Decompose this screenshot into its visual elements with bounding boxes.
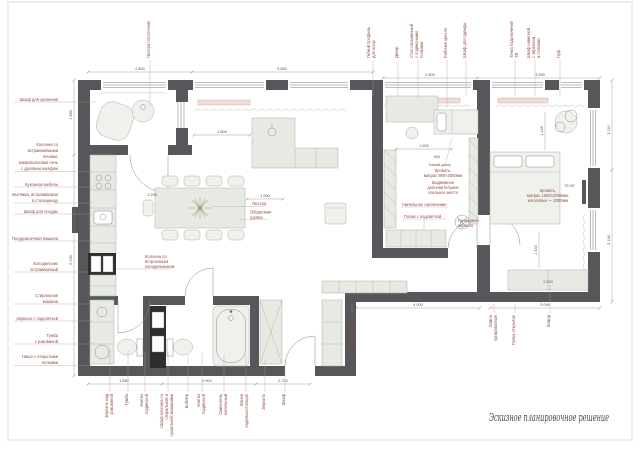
annotation-label: с раковиной [35,339,58,344]
annotation-label: Люстра [252,201,267,206]
annotation-label: Тумба [46,333,58,338]
annotation-label: Люстра потолочная [146,21,151,58]
drawing-title: Эскизное планировочное решение [489,411,609,424]
annotation-label: Рабочее кресло [443,27,448,58]
annotation-label: Полка открытая [511,315,516,345]
annotation-label: обувница, полки [351,315,356,346]
dimension-label: 2 800 [425,73,435,77]
annotation-label: встраиваемыми [28,148,58,153]
dimension-label: 2 800 [135,67,145,71]
annotation-label: Вытяжка, встраиваемая [12,192,58,197]
annotation-label: сушильной машинами [169,394,174,436]
annotation-label: изголовье — 2000мм [528,198,568,203]
annotation-label: Декор [394,46,399,58]
annotation-label: Кухонная мебель [25,182,58,187]
dimension-label: 1 805 [217,130,227,134]
annotation-label: в столешницу [32,198,59,203]
annotation-label: Ниша с открытыми [22,354,58,359]
hall-wardrobe [322,281,407,293]
annotation-label: Посудомоечная машина [12,236,59,241]
vanity [90,300,114,364]
plant-icon [555,111,577,133]
dimension-label: 920 [434,155,440,159]
dimension-label: 4 000 [413,303,423,307]
annotation-label: Ампельное озеленение [402,202,447,207]
annotation-label: Шкаф для посуды [24,209,58,214]
annotation-label: подвесной [144,394,149,414]
annotation-label: ТВ 55″ [564,184,576,188]
dimension-label: 1 200 [147,193,157,197]
dimension-label: 5 130 [607,235,611,245]
annotation-label: зеркало [458,223,474,228]
annotation-label: Бойлер [184,393,189,408]
drawing-sheet: 2 800 5 550 2 800 3 090 1 680 2 900 2 72… [0,0,640,452]
dimension-label: 2 900 [202,379,212,383]
dimension-label: 5 550 [277,67,287,71]
annotation-label: группа [250,215,263,220]
annotation-label: отдельностоящая [244,394,249,428]
annotation-label: холодильником [145,264,175,269]
annotation-label: Зеркало [261,393,266,410]
toilet-icon [118,339,144,356]
dimension-label: 1 600 [419,144,429,148]
annotations-top: Люстра потолочная Гибкий профиль для што… [146,21,561,107]
hall-cabinet [322,300,342,366]
annotation-label: и полками [536,39,541,58]
annotation-label: полками [419,42,424,58]
annotation-label: Шкаф для хранения [20,97,58,102]
dimension-label: 1 985 [69,110,73,120]
annotation-label: спальное место [428,190,459,195]
dimension-label: 1 145 [540,126,544,136]
dimension-label: 3 110 [607,125,611,134]
floor-mirror [132,100,154,122]
annotation-label: Полки с подсветкой [404,214,441,219]
dimension-label: 1 680 [119,379,129,383]
entry-room [93,99,154,144]
floorplan-canvas: 2 800 5 550 2 800 3 090 1 680 2 900 2 72… [0,0,640,452]
annotation-label: Колонна со [36,142,58,147]
annotation-label: Тканый декор [428,163,451,167]
annotation-label: напольный [223,394,228,415]
annotation-label: Холодильник [33,261,58,266]
dimension-label: 1 000 [260,194,270,198]
dimension-label: 3 090 [540,303,550,307]
annotation-label: Пуф [556,49,561,58]
toilet-icon [167,339,193,356]
dimension-label: 5 195 [69,255,73,265]
pouf [93,99,136,144]
annotation-label: раковиной [109,394,114,414]
annotation-label: Точка подключения [509,21,514,58]
annotation-label: печами: [43,154,58,159]
annotation-label: полками [42,360,58,365]
kids-desk [386,96,438,122]
annotation-label: Тумба [124,393,129,405]
kids-pillow [437,113,446,131]
kitchen-sink-icon [94,211,112,224]
dimension-label: 2 200 [543,280,553,284]
annotation-label: прикроватная [493,315,498,341]
annotation-label: матрас 900×2000мм [424,173,463,178]
dimension-label: 1 445 [534,245,538,255]
annotation-label: микроволновая печь [19,160,58,165]
kids-wardrobe-right [469,138,478,224]
desk-stool [406,127,418,139]
bathtub-icon [213,306,249,366]
bathrooms [90,300,249,368]
annotation-label: машина [43,299,59,304]
pillow [494,156,522,167]
annotation-label: ТВ [514,52,519,58]
annotation-label: Зеркало с подсветкой [16,316,58,321]
annotation-label: Обеденная [250,210,271,215]
annotation-label: встраиваемый [30,267,58,272]
dining-area [143,176,346,240]
annotation-label: Шкаф [281,393,286,405]
kitchen-counter [90,155,116,255]
dimension-label: 3 090 [535,73,545,77]
doors [118,155,520,366]
annotation-label: для штор [371,39,376,58]
armchair [325,203,346,224]
tv-icon [582,180,586,204]
annotation-label: Стиральная [35,293,58,298]
annotation-label: Шкаф для одежды [462,23,467,58]
pillow [526,156,554,167]
annotation-label: Комод [546,314,551,327]
annotation-label: с духовым шкафом [21,166,58,171]
dimension-label: 2 720 [278,379,288,383]
annotation-label: подвесной [201,394,206,414]
